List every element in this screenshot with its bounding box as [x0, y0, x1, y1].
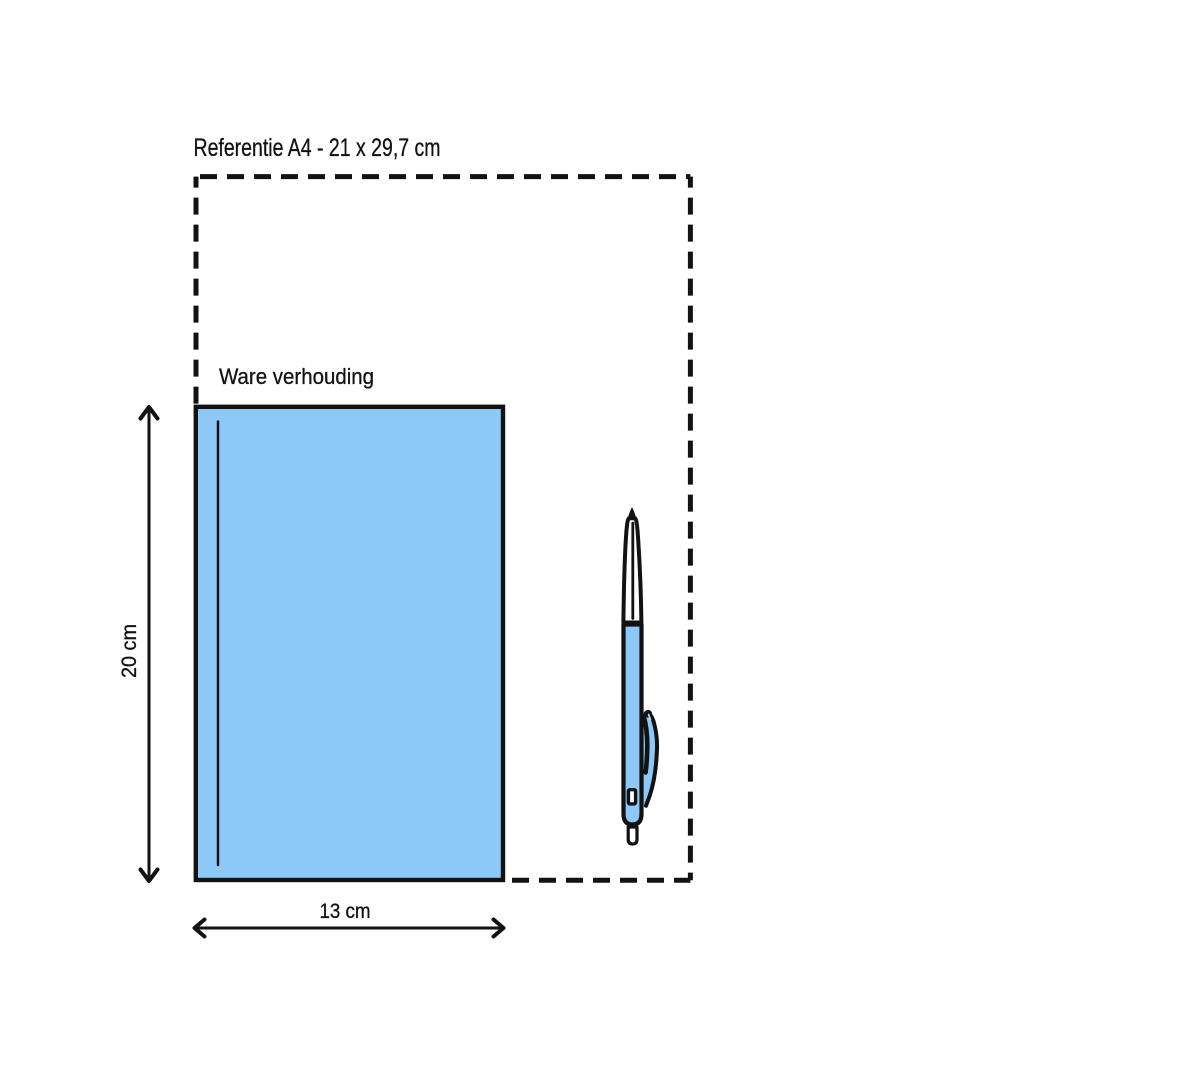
svg-text:20 cm: 20 cm — [117, 624, 141, 678]
svg-text:Referentie A4 - 21 x 29,7 cm: Referentie A4 - 21 x 29,7 cm — [194, 134, 441, 162]
svg-text:Ware verhouding: Ware verhouding — [219, 364, 374, 389]
svg-text:13 cm: 13 cm — [320, 900, 371, 923]
